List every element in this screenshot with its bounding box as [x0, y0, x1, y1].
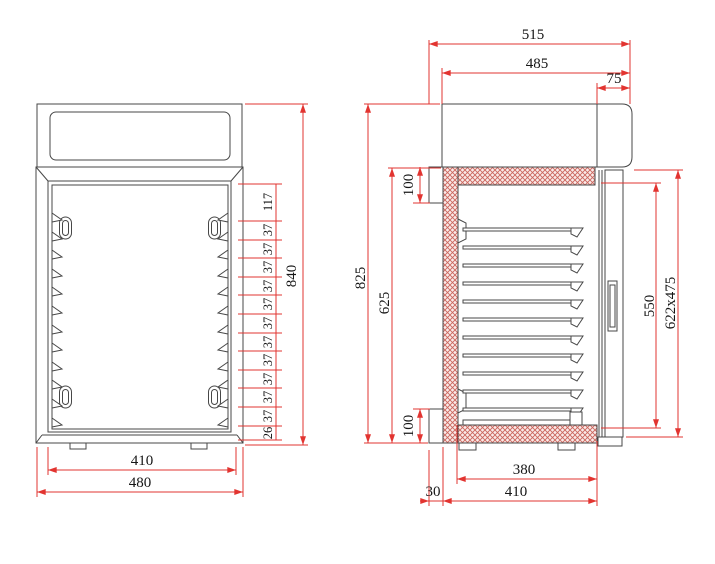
- front-view: 410 480 840 117 37 37 37 37 37 37 37 37 …: [36, 104, 308, 497]
- dim-label-side-overall-height: 825: [353, 267, 369, 290]
- dim-label-stack-1: 37: [261, 224, 275, 237]
- dim-label-side-overall-width: 515: [522, 27, 545, 43]
- dim-label-side-door-size: 622x475: [663, 277, 679, 330]
- dim-label-stack-5: 37: [261, 298, 275, 311]
- side-feet: [459, 443, 575, 450]
- side-insulation-bottom: [458, 425, 597, 443]
- front-tray-supports: [52, 213, 228, 427]
- dim-label-side-tray-width: 380: [513, 462, 536, 478]
- side-foot-left: [459, 443, 476, 450]
- side-view: 515 485 75 825 625 100 100 550 622x475 3…: [353, 27, 683, 506]
- dim-label-stack-8: 37: [261, 354, 275, 367]
- drawing-canvas: 410 480 840 117 37 37 37 37 37 37 37 37 …: [0, 0, 715, 564]
- dim-label-front-inner-width: 410: [131, 453, 154, 469]
- dim-label-side-body-width: 485: [526, 56, 549, 72]
- dim-label-side-back-offset: 30: [426, 484, 441, 500]
- dim-label-front-outer-width: 480: [129, 475, 152, 491]
- dim-label-front-overall-height: 840: [284, 265, 300, 288]
- dim-label-stack-6: 37: [261, 317, 275, 330]
- side-top-cap: [442, 104, 632, 167]
- side-trays: [463, 228, 583, 425]
- dim-label-stack-2: 37: [261, 243, 275, 256]
- side-bottom-tray: [463, 420, 571, 425]
- side-door-bottom-step: [598, 437, 622, 446]
- side-door-handle: [608, 281, 617, 331]
- side-cabinet-outline: [429, 104, 632, 446]
- front-control-window: [50, 112, 230, 160]
- front-foot-right: [191, 443, 207, 449]
- technical-drawing: 410 480 840 117 37 37 37 37 37 37 37 37 …: [0, 0, 715, 564]
- side-insulation-top: [458, 167, 595, 185]
- dim-label-stack-3: 37: [261, 261, 275, 274]
- dim-label-side-flange-bottom: 100: [401, 415, 417, 438]
- dim-label-stack-7: 37: [261, 336, 275, 349]
- dim-label-stack-9: 37: [261, 373, 275, 386]
- dim-label-side-insulated-height: 625: [377, 292, 393, 315]
- dim-label-stack-4: 37: [261, 280, 275, 293]
- front-feet: [70, 443, 207, 449]
- front-top-cap: [37, 104, 242, 167]
- front-dimension-labels: 410 480 840 117 37 37 37 37 37 37 37 37 …: [129, 193, 300, 491]
- side-flange-bottom: [429, 409, 443, 443]
- dim-label-side-flange-top: 100: [401, 174, 417, 197]
- side-foot-right: [558, 443, 575, 450]
- dim-label-stack-12: 26: [261, 427, 275, 440]
- front-door-panel: [52, 185, 228, 429]
- dim-label-side-base-width: 410: [505, 484, 528, 500]
- front-foot-left: [70, 443, 86, 449]
- side-insulation-back: [443, 167, 458, 443]
- dim-label-stack-11: 37: [261, 410, 275, 423]
- dim-label-side-chamber-height: 550: [642, 295, 658, 318]
- front-vent-slots: [60, 217, 221, 408]
- side-flange-top: [429, 167, 443, 203]
- dim-label-stack-0: 117: [261, 193, 275, 211]
- dim-label-side-top-right: 75: [607, 71, 622, 87]
- front-door-frame: [48, 181, 231, 432]
- dim-label-stack-10: 37: [261, 391, 275, 404]
